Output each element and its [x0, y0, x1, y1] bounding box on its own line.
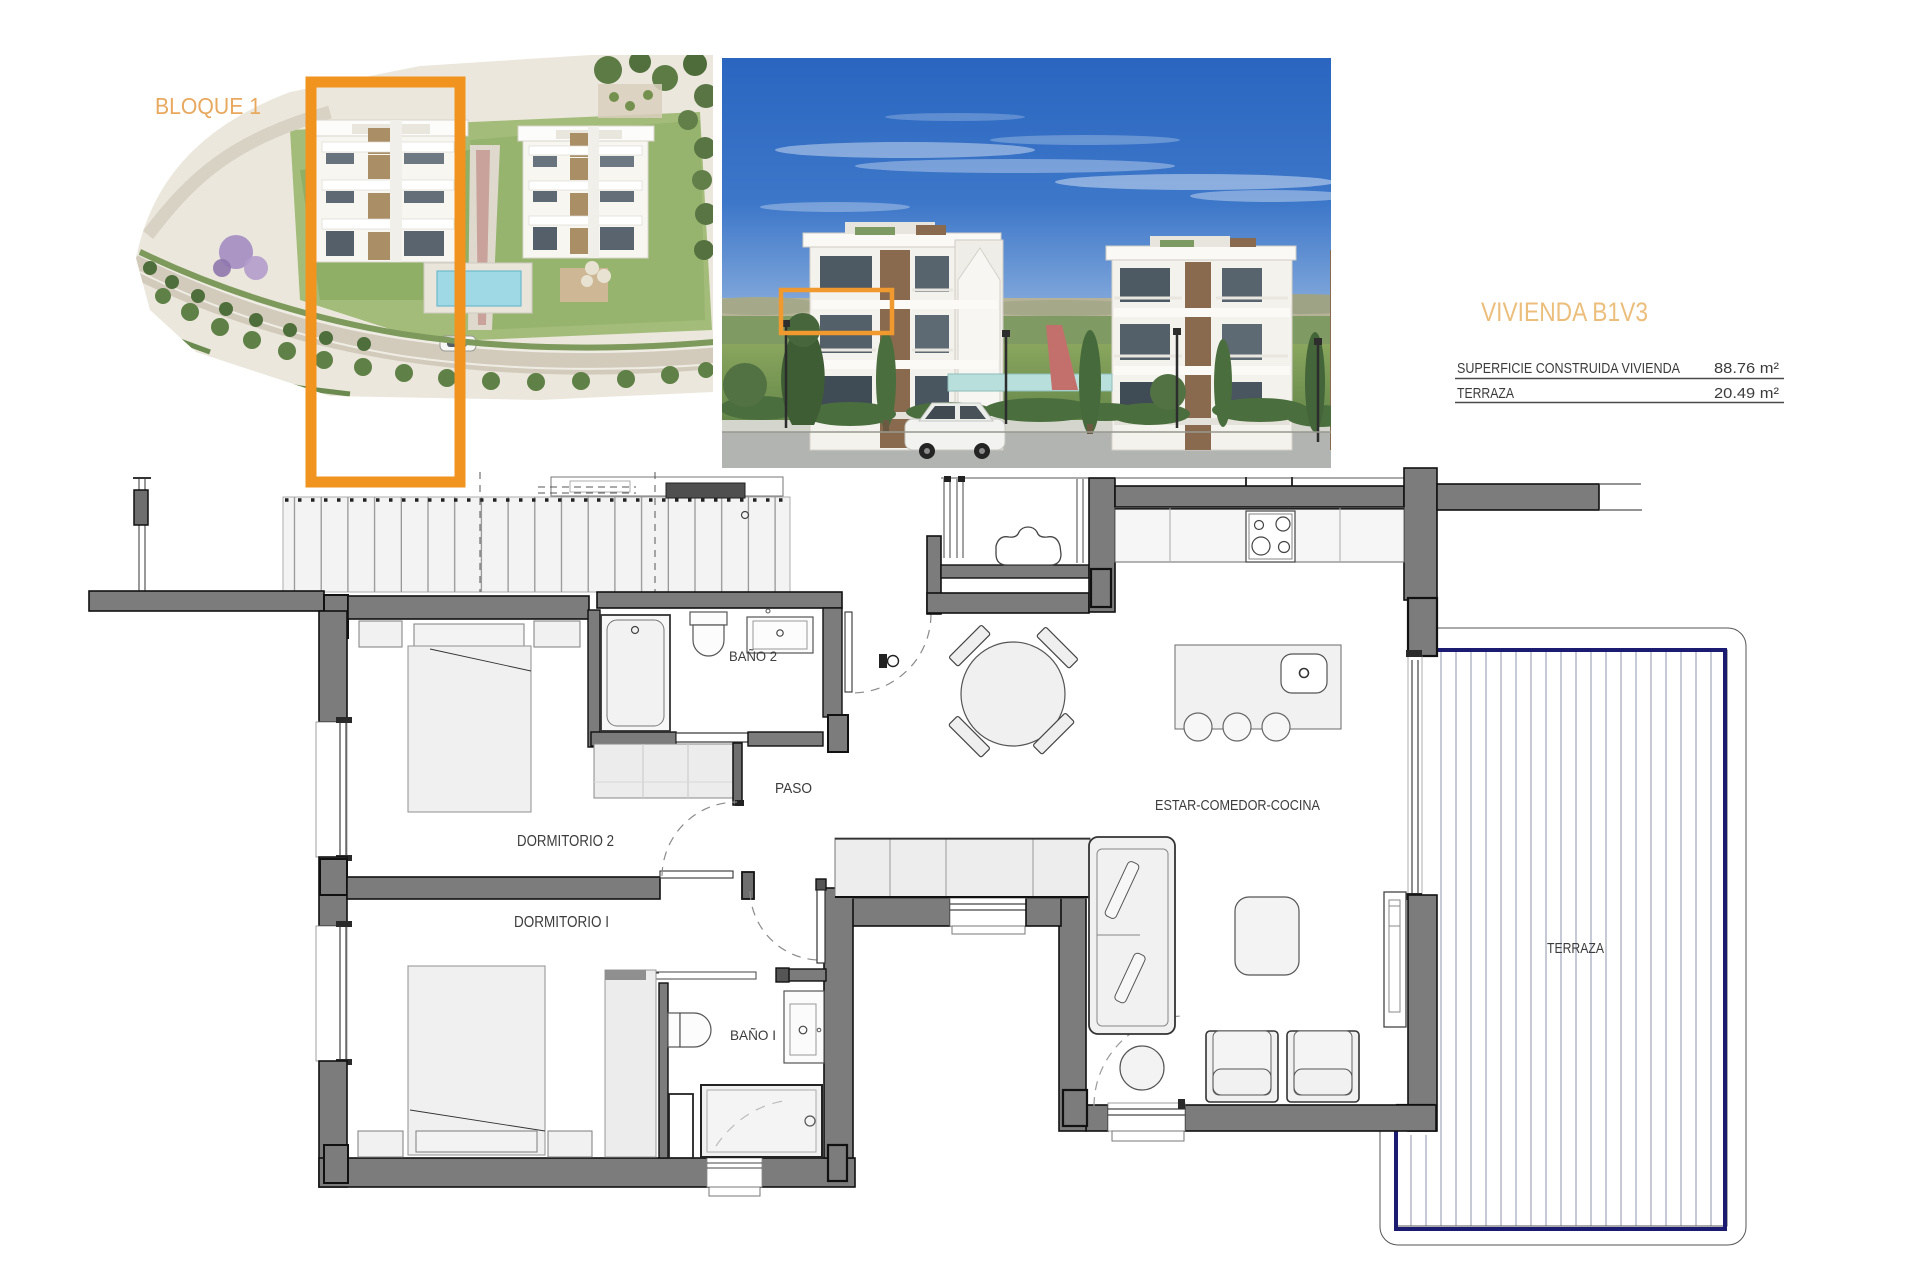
svg-text:BAÑO I: BAÑO I — [730, 1027, 776, 1043]
svg-text:20.49 m²: 20.49 m² — [1714, 385, 1779, 402]
svg-text:VIVIENDA B1V3: VIVIENDA B1V3 — [1481, 297, 1648, 327]
svg-text:TERRAZA: TERRAZA — [1457, 385, 1514, 402]
svg-text:PASO: PASO — [775, 781, 812, 797]
svg-text:TERRAZA: TERRAZA — [1547, 941, 1604, 957]
svg-text:88.76 m²: 88.76 m² — [1714, 360, 1779, 377]
svg-text:DORMITORIO 2: DORMITORIO 2 — [517, 833, 614, 850]
svg-text:SUPERFICIE CONSTRUIDA VIVIENDA: SUPERFICIE CONSTRUIDA VIVIENDA — [1457, 360, 1680, 377]
svg-text:ESTAR-COMEDOR-COCINA: ESTAR-COMEDOR-COCINA — [1155, 797, 1320, 814]
svg-text:BLOQUE 1: BLOQUE 1 — [155, 93, 261, 119]
svg-text:BAÑO 2: BAÑO 2 — [729, 648, 777, 664]
svg-text:DORMITORIO I: DORMITORIO I — [514, 914, 609, 931]
